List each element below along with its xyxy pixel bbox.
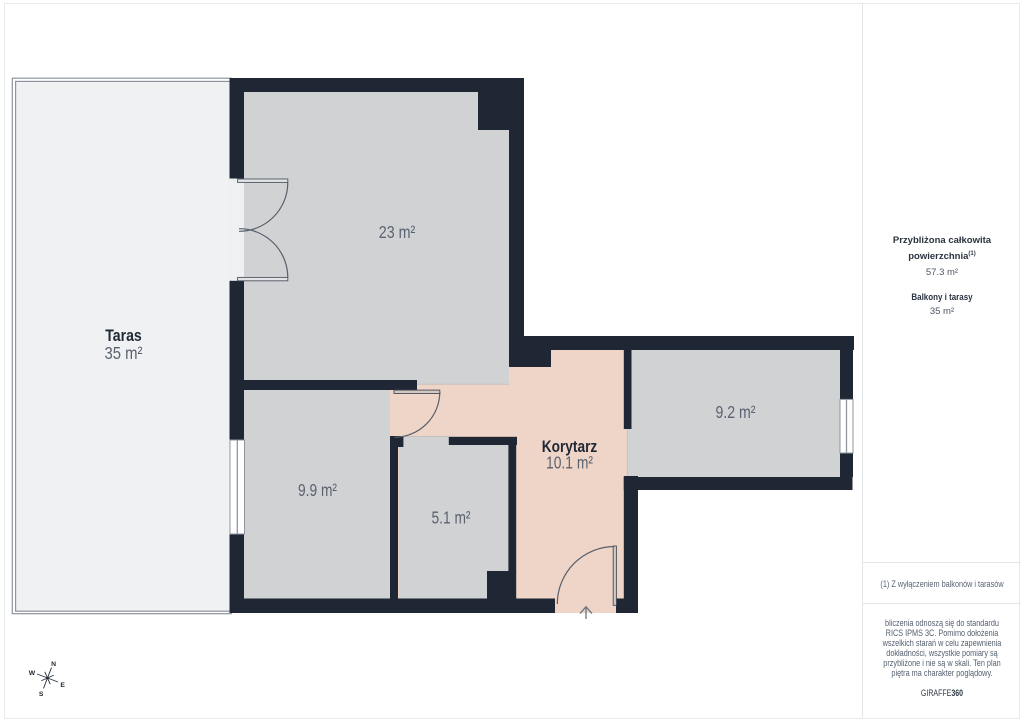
- svg-text:5.1 m²: 5.1 m²: [432, 508, 471, 528]
- svg-text:10.1 m²: 10.1 m²: [546, 453, 593, 473]
- svg-text:S: S: [39, 691, 44, 698]
- svg-text:23 m²: 23 m²: [379, 222, 416, 242]
- svg-text:W: W: [29, 670, 36, 677]
- svg-text:9.9 m²: 9.9 m²: [298, 480, 337, 500]
- svg-text:35 m²: 35 m²: [105, 343, 143, 363]
- svg-text:N: N: [51, 661, 56, 668]
- svg-text:E: E: [60, 682, 65, 689]
- svg-text:9.2 m²: 9.2 m²: [716, 402, 756, 422]
